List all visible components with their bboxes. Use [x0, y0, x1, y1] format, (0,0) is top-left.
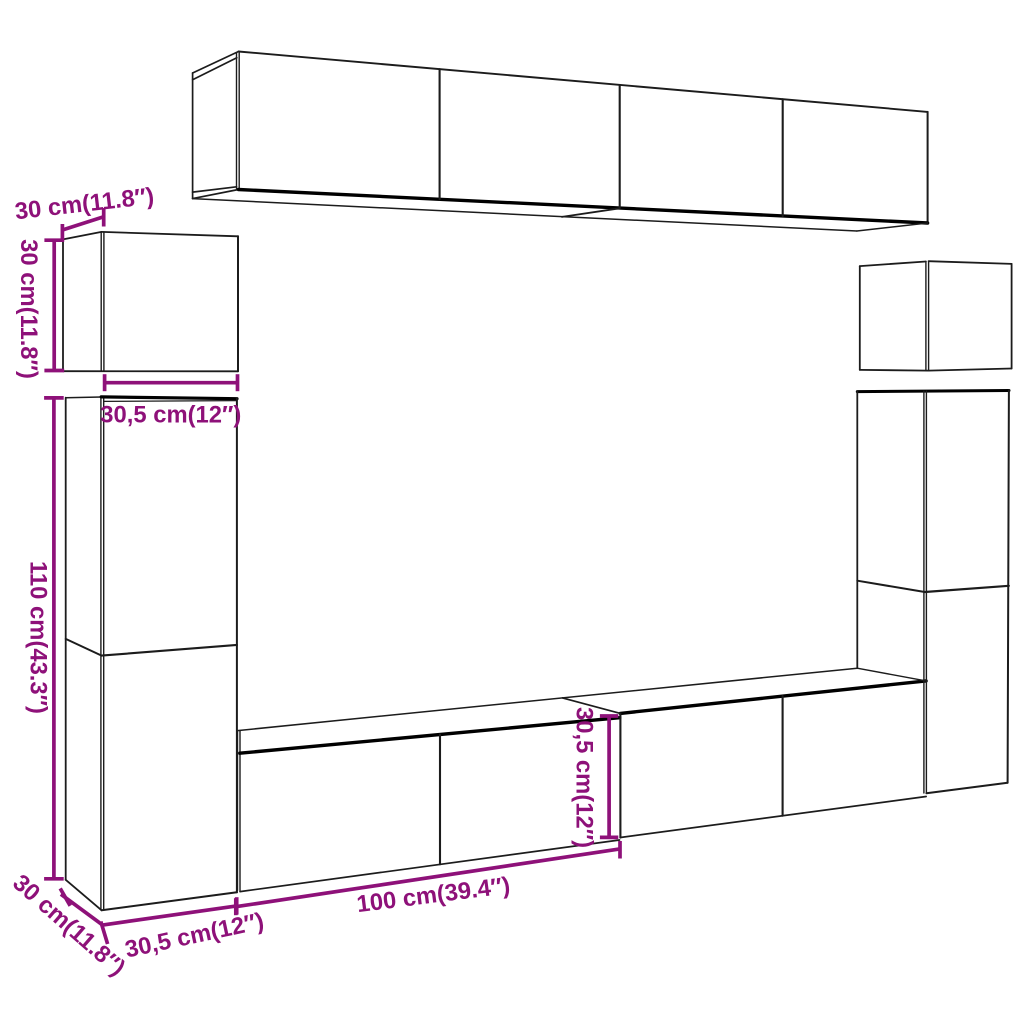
- svg-text:30,5 cm(12″): 30,5 cm(12″): [571, 707, 598, 848]
- svg-text:30 cm(11.8″): 30 cm(11.8″): [15, 239, 42, 379]
- svg-text:30,5 cm(12″): 30,5 cm(12″): [100, 401, 241, 428]
- svg-text:110 cm(43.3″): 110 cm(43.3″): [25, 561, 52, 714]
